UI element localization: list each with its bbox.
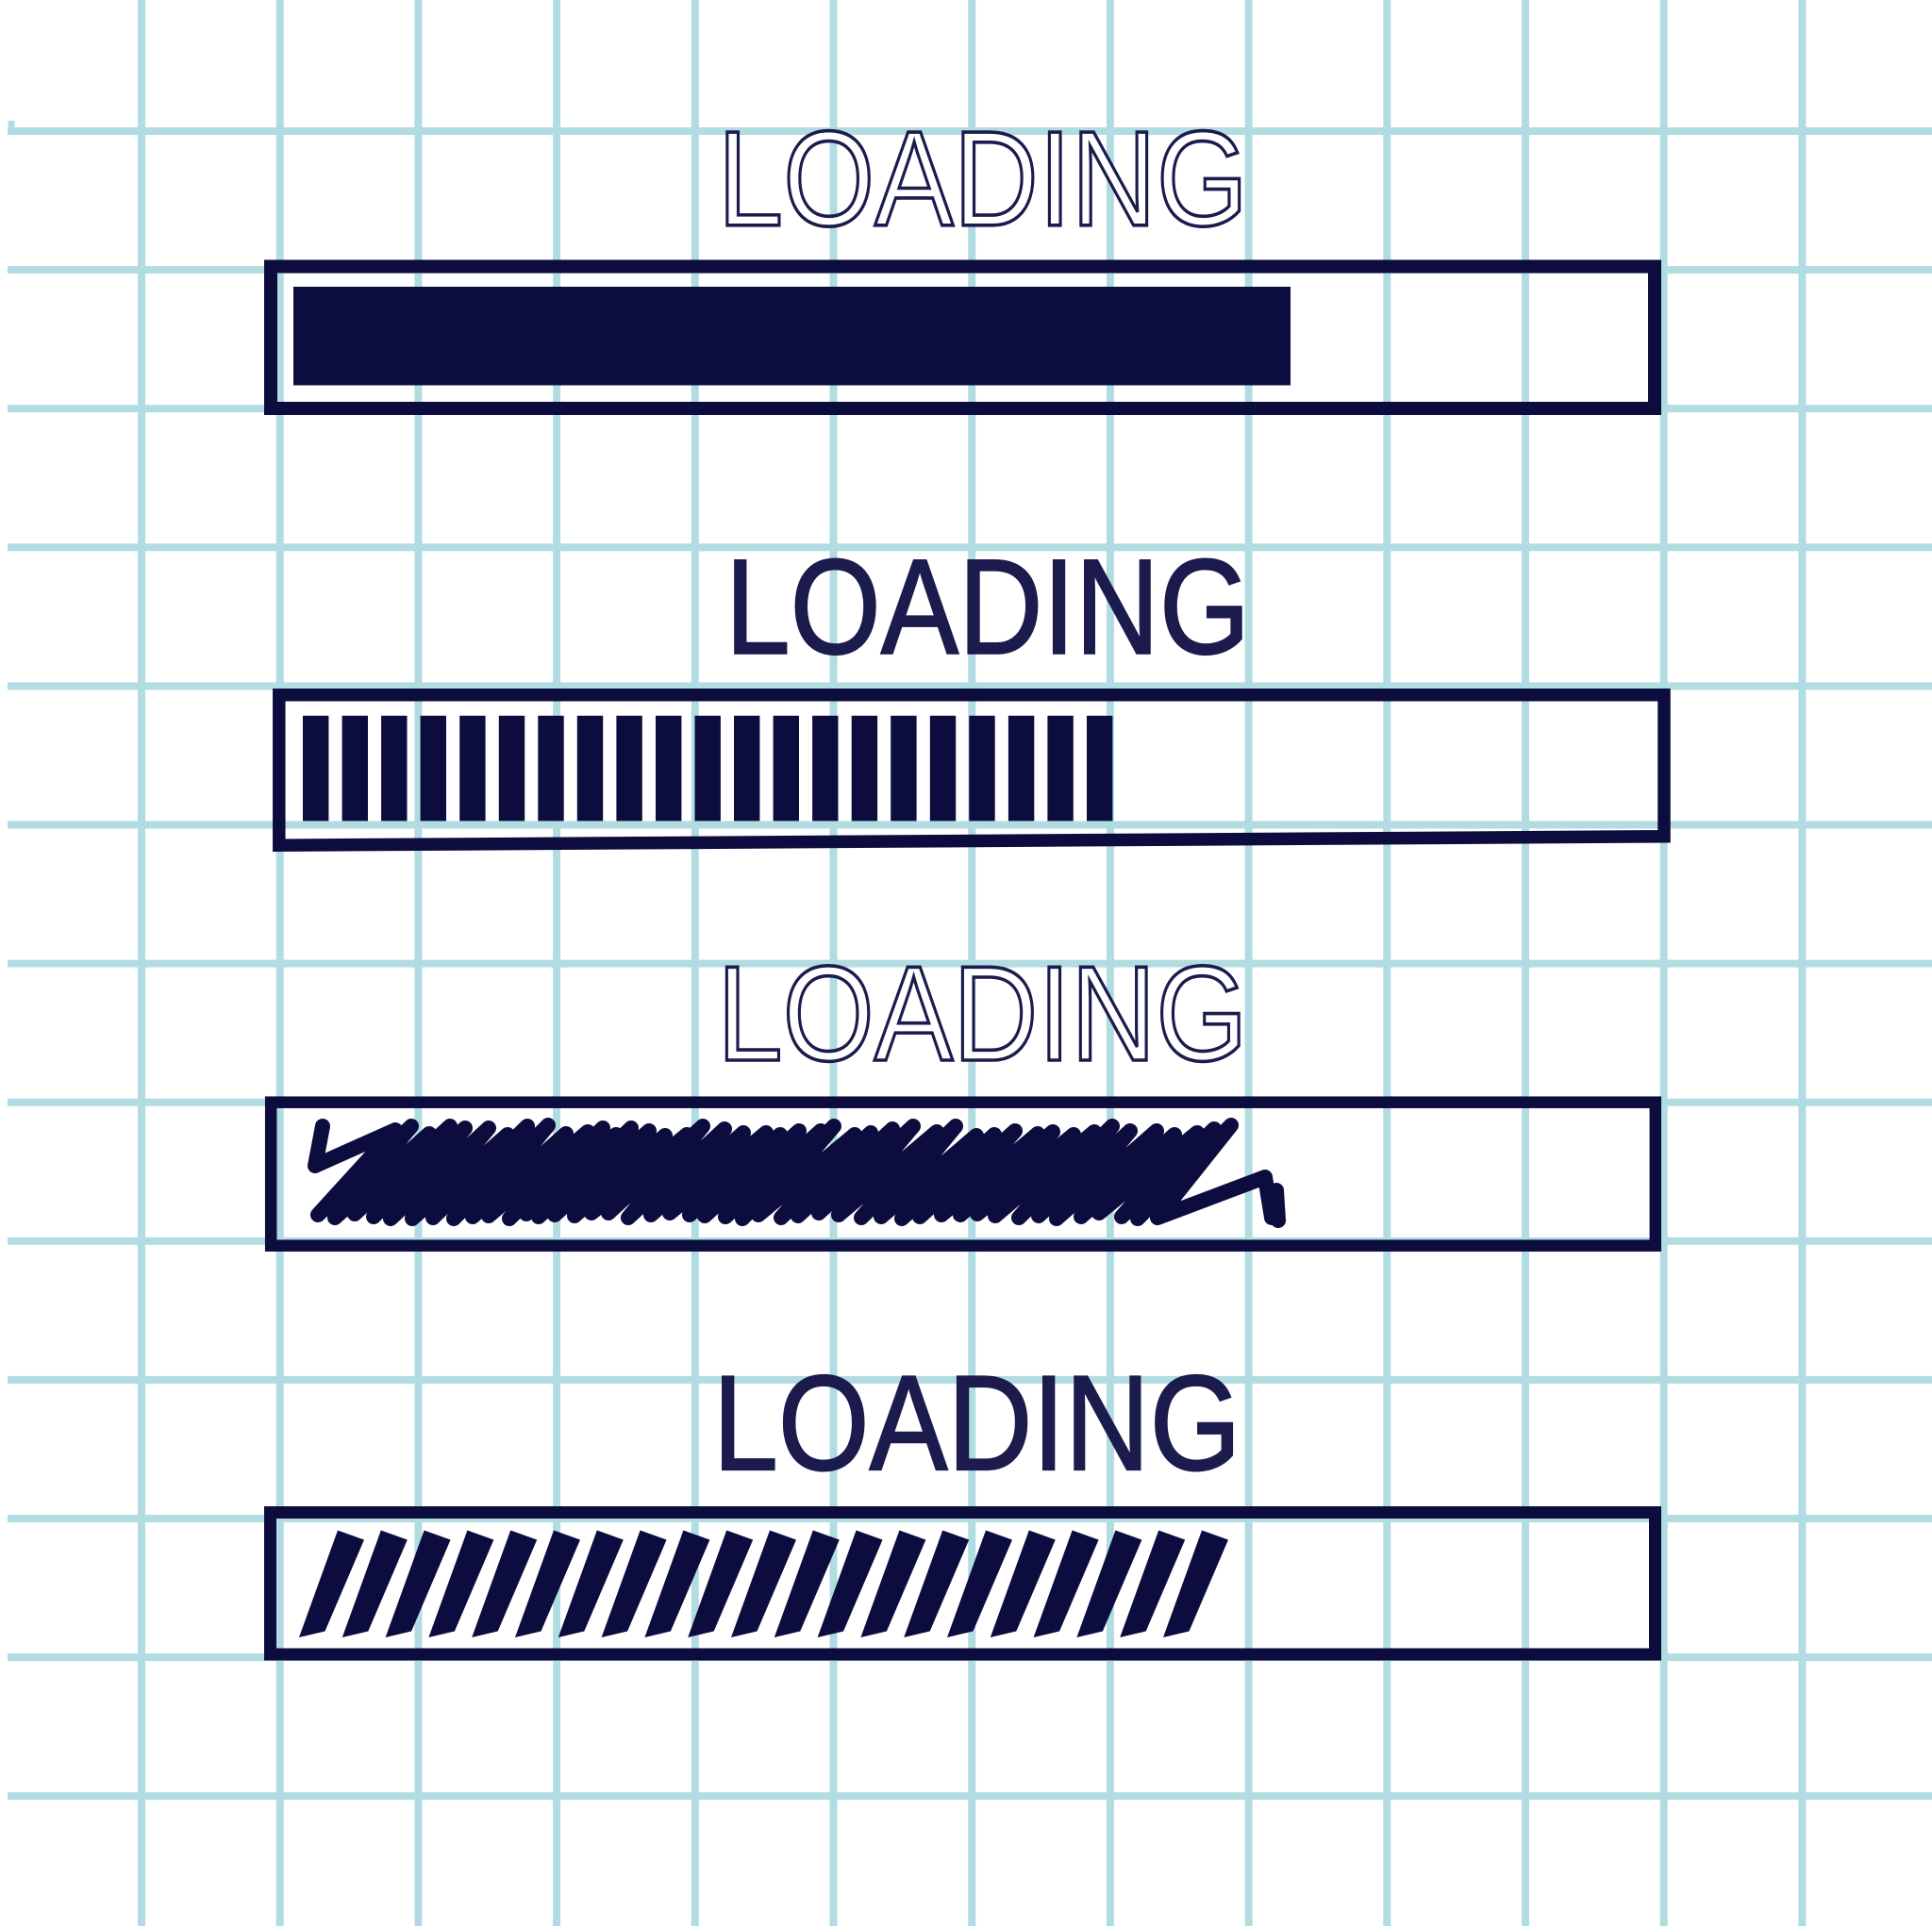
svg-text:LOADING: LOADING [713, 1348, 1241, 1499]
svg-text:LOADING: LOADING [717, 938, 1247, 1089]
svg-text:LOADING: LOADING [718, 104, 1248, 255]
svg-text:LOADING: LOADING [725, 532, 1250, 683]
